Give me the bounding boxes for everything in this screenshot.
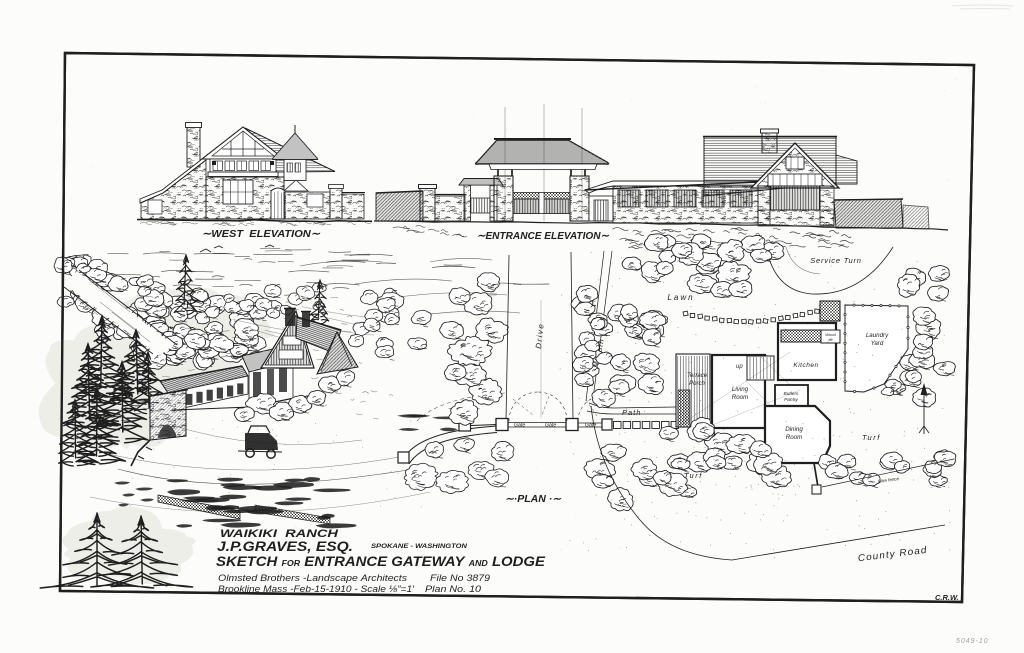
svg-text:Pantry: Pantry xyxy=(784,397,798,403)
svg-text:∼·PLAN ·∼: ∼·PLAN ·∼ xyxy=(505,494,562,505)
svg-text:Plan No. 10: Plan No. 10 xyxy=(425,584,482,595)
svg-text:Kitchen: Kitchen xyxy=(793,362,818,369)
svg-text:Service Turn: Service Turn xyxy=(810,256,862,265)
svg-text:Porch: Porch xyxy=(689,381,705,387)
svg-text:up: up xyxy=(736,364,743,370)
svg-text:∼WEST ELEVATION∼: ∼WEST ELEVATION∼ xyxy=(202,228,321,240)
svg-text:County Road: County Road xyxy=(857,545,928,564)
svg-text:Wire fence: Wire fence xyxy=(877,476,899,484)
svg-text:Terrace: Terrace xyxy=(687,373,708,379)
svg-text:Turf: Turf xyxy=(684,471,703,480)
svg-text:SKETCH FOR ENTRANCE GATEWAY AN: SKETCH FOR ENTRANCE GATEWAY AND LODGE xyxy=(216,554,546,569)
svg-text:Room: Room xyxy=(786,434,803,441)
svg-text:Butlers: Butlers xyxy=(784,391,800,397)
svg-text:Room: Room xyxy=(732,394,749,401)
svg-text:SPOKANE - WASHINGTON: SPOKANE - WASHINGTON xyxy=(371,543,467,550)
svg-text:J.P.GRAVES, ESQ.: J.P.GRAVES, ESQ. xyxy=(217,539,353,554)
svg-text:Lawn: Lawn xyxy=(667,293,694,302)
svg-text:File No 3879: File No 3879 xyxy=(430,573,491,584)
svg-text:Drive: Drive xyxy=(534,322,546,349)
svg-text:Laundry: Laundry xyxy=(866,332,889,339)
svg-text:∼ENTRANCE ELEVATION∼: ∼ENTRANCE ELEVATION∼ xyxy=(477,230,610,242)
svg-text:Yard: Yard xyxy=(871,340,884,347)
svg-text:Gate: Gate xyxy=(514,423,525,429)
svg-text:Gate: Gate xyxy=(545,423,556,429)
svg-text:Path: Path xyxy=(622,408,641,417)
svg-text:Olmsted Brothers -Landscape Ar: Olmsted Brothers -Landscape Architects xyxy=(218,573,407,584)
svg-text:Dining: Dining xyxy=(785,426,803,433)
svg-text:Turf: Turf xyxy=(862,433,881,442)
svg-text:C.R.W.: C.R.W. xyxy=(935,593,959,602)
svg-text:5049-10: 5049-10 xyxy=(956,638,989,645)
svg-text:Living: Living xyxy=(732,386,749,393)
